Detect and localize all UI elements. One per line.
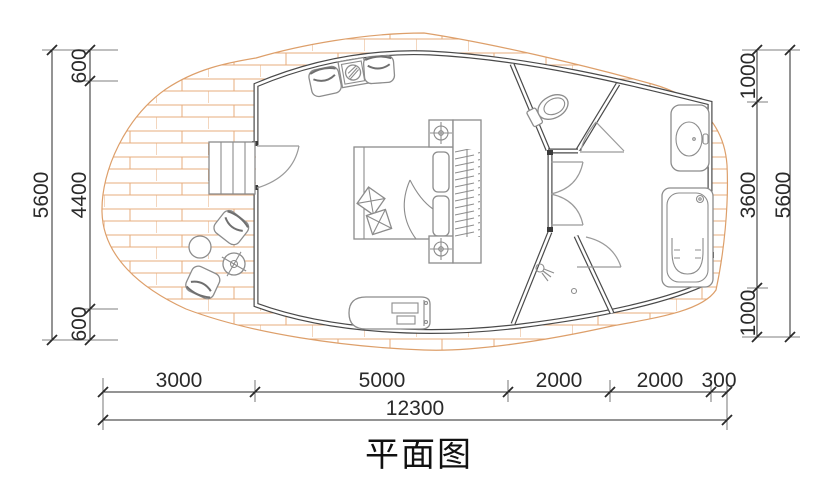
lounge-chair bbox=[308, 65, 343, 98]
pillow bbox=[433, 196, 449, 236]
outdoor-table bbox=[189, 236, 211, 258]
dim-right-total: 5600 bbox=[772, 172, 795, 219]
dim-left-seg-2: 600 bbox=[68, 306, 91, 341]
dim-left-total: 5600 bbox=[30, 172, 53, 219]
lounge-chair bbox=[363, 55, 395, 84]
washbasin bbox=[671, 105, 709, 171]
floor-plan-canvas: 600 4400 600 5600 1000 3600 1000 5600 30… bbox=[0, 0, 837, 496]
dim-bottom-seg-1: 5000 bbox=[359, 369, 406, 392]
dim-bottom-total: 12300 bbox=[386, 397, 444, 420]
floor-plan-page: 600 4400 600 5600 1000 3600 1000 5600 30… bbox=[0, 0, 837, 496]
dim-bottom-seg-4: 300 bbox=[701, 369, 736, 392]
dim-left-seg-0: 600 bbox=[68, 48, 91, 83]
dimension-bottom: 3000 5000 2000 2000 300 12300 bbox=[98, 369, 737, 430]
tv-bench bbox=[349, 297, 430, 329]
wardrobe bbox=[453, 120, 481, 263]
bathtub bbox=[662, 188, 713, 287]
drawing-title: 平面图 bbox=[365, 436, 473, 474]
dim-right-seg-1: 3600 bbox=[737, 172, 760, 219]
pillow bbox=[433, 152, 449, 192]
dim-right-seg-0: 1000 bbox=[737, 53, 760, 100]
dim-bottom-seg-0: 3000 bbox=[156, 369, 203, 392]
dim-left-seg-1: 4400 bbox=[68, 172, 91, 219]
dimension-right: 1000 3600 1000 5600 bbox=[737, 45, 800, 342]
dim-bottom-seg-3: 2000 bbox=[637, 369, 684, 392]
entry-steps bbox=[209, 142, 255, 194]
dim-bottom-seg-2: 2000 bbox=[536, 369, 583, 392]
dim-right-seg-2: 1000 bbox=[737, 290, 760, 337]
